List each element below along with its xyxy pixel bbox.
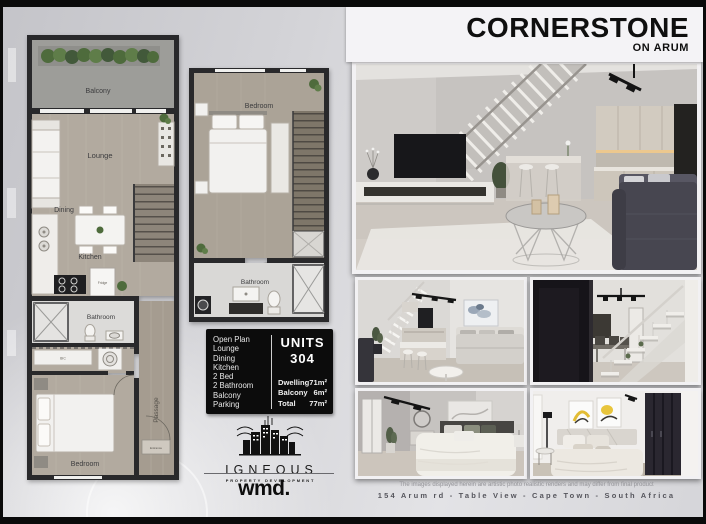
left-border <box>0 0 3 524</box>
top-border <box>0 0 706 7</box>
bathroom: Bathroom <box>32 301 134 343</box>
area-label: Balcony <box>278 388 308 399</box>
photo-bedroom-one <box>355 388 527 479</box>
background-shape <box>8 48 16 82</box>
unit-details: UNITS 304 Dwelling 71m² Balcony 6m² Tota… <box>272 335 327 409</box>
step-plant <box>626 354 631 359</box>
area-row: Balcony 6m² <box>278 388 327 399</box>
nightstand <box>34 378 48 390</box>
feature-item: Dining <box>213 354 268 363</box>
units-label: UNITS <box>278 335 327 350</box>
disclaimer-text: The images displayed herein are artistic… <box>352 482 701 488</box>
cupboard-label: BIC <box>60 357 66 361</box>
feature-item: Balcony <box>213 391 268 400</box>
stairs-upper <box>293 111 324 231</box>
feature-item: Open Plan <box>213 335 268 344</box>
wall-right <box>685 280 698 382</box>
unit-number: 304 <box>278 351 327 366</box>
photo-staircase <box>530 277 701 385</box>
background-shape <box>7 188 16 218</box>
balcony-plants <box>41 48 159 64</box>
feature-item: Parking <box>213 400 268 409</box>
bed <box>551 429 643 476</box>
nightstand <box>34 456 48 468</box>
balcony: Balcony <box>32 40 174 108</box>
candle <box>548 195 559 214</box>
background-shape <box>7 330 16 356</box>
nightstand <box>195 181 208 194</box>
feature-item: 2 Bed <box>213 372 268 381</box>
address-text: 154 Arum rd - Table View - Cape Town - S… <box>352 491 701 500</box>
page-title: CORNERSTONE <box>346 12 689 44</box>
feature-item: 2 Bathroom <box>213 381 268 390</box>
room-label-bedroom: Bedroom <box>71 461 100 468</box>
sofa <box>456 327 524 364</box>
room-label-dining: Dining <box>54 207 74 214</box>
stairs-lower <box>134 184 174 262</box>
vanity <box>229 287 263 314</box>
upper-floor-plan: Bedroom <box>185 65 333 327</box>
area-table: Dwelling 71m² Balcony 6m² Total 77m² <box>278 378 327 410</box>
area-value: 77m² <box>309 399 327 410</box>
washer <box>98 348 122 370</box>
upper-bedroom: Bedroom <box>194 73 324 258</box>
window-wall <box>32 108 174 114</box>
area-label: Total <box>278 399 296 410</box>
room-label-kitchen: Kitchen <box>78 254 101 261</box>
window <box>362 399 382 453</box>
closet <box>271 123 289 193</box>
window <box>629 308 643 362</box>
candle <box>532 200 541 214</box>
toilet <box>85 325 95 342</box>
bar-stool <box>545 164 559 170</box>
throw-blanket <box>416 459 516 471</box>
wall-art <box>464 300 498 326</box>
bottom-border <box>0 517 706 524</box>
room-label-bedroom-upper: Bedroom <box>245 103 274 110</box>
tv-unit <box>158 122 174 166</box>
fridge-label: Fridge <box>98 281 108 285</box>
tiled-duct <box>293 231 324 257</box>
dark-wall <box>533 280 593 382</box>
shower <box>34 303 68 341</box>
logo-divider <box>204 473 334 474</box>
upper-shower <box>293 265 324 313</box>
title-band: CORNERSTONE ON ARUM <box>346 6 703 62</box>
lounge-couch <box>32 120 60 208</box>
entrance-label: Entrance <box>150 446 162 450</box>
wall <box>32 343 134 347</box>
sofa <box>612 174 697 270</box>
fridge: Fridge <box>90 268 115 296</box>
photo-open-plan-living <box>355 277 527 385</box>
area-value: 6m² <box>313 388 327 399</box>
basin <box>106 331 123 340</box>
bathroom-wall <box>32 296 135 301</box>
cupboard-area: BIC <box>32 347 134 373</box>
tv <box>394 134 466 178</box>
unit-info-box: Open Plan Lounge Dining Kitchen 2 Bed 2 … <box>206 329 333 414</box>
lower-floor-plan: Balcony Lo <box>22 32 182 492</box>
agency-logo: wmd. <box>206 477 322 501</box>
feature-item: Kitchen <box>213 363 268 372</box>
photo-living-room-main <box>352 60 701 274</box>
bedroom-window <box>54 476 102 479</box>
upper-washer <box>195 296 211 314</box>
feature-list: Open Plan Lounge Dining Kitchen 2 Bed 2 … <box>213 335 272 409</box>
area-row: Dwelling 71m² <box>278 378 327 389</box>
wardrobe <box>645 393 681 475</box>
feature-item: Lounge <box>213 344 268 353</box>
bar-stool <box>519 164 533 170</box>
wall-right <box>681 391 698 476</box>
room-label-balcony: Balcony <box>86 88 111 95</box>
bed <box>36 394 114 452</box>
upper-toilet <box>268 291 280 314</box>
bedroom: Bedroom <box>32 375 134 479</box>
under-cabinet-light <box>596 150 681 153</box>
room-label-lounge: Lounge <box>87 151 112 160</box>
area-label: Dwelling <box>278 378 309 389</box>
developer-name: IGNEOUS <box>206 463 333 477</box>
room-label-bathroom-upper: Bathroom <box>241 279 269 286</box>
upper-bathroom: Bathroom <box>194 263 324 317</box>
igneous-buildings-icon <box>233 414 307 458</box>
flyer-canvas: CORNERSTONE ON ARUM Balcony <box>0 0 706 524</box>
step-plant <box>639 342 644 347</box>
area-value: 71m² <box>309 378 327 389</box>
nightstand <box>514 424 524 447</box>
room-label-passage: Passage <box>153 397 160 423</box>
photo-bedroom-two <box>530 388 701 479</box>
area-row: Total 77m² <box>278 399 327 410</box>
kitchen-plant <box>117 281 127 291</box>
room-label-bathroom: Bathroom <box>87 314 115 321</box>
nightstand <box>195 103 208 116</box>
stove <box>54 275 86 294</box>
